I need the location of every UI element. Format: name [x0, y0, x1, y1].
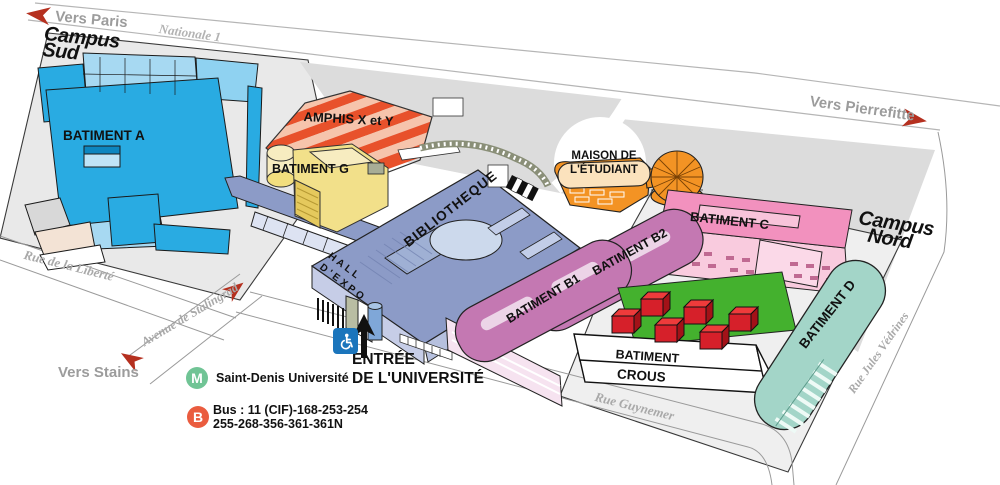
building-a [25, 53, 262, 270]
entrance-label: ENTRÉE DE L'UNIVERSITÉ [352, 350, 484, 389]
accessibility-icon [333, 328, 358, 354]
bus-icon: B [187, 406, 209, 428]
bus-lines-label-2: 255-268-356-361-361N [213, 417, 343, 431]
campus-map: { "directions": { "paris": "Vers Paris",… [0, 0, 1000, 485]
metro-icon: M [186, 367, 208, 389]
campus-sud-label: Campus Sud [42, 26, 121, 67]
batiment-a-label: BATIMENT A [63, 128, 145, 143]
entrance-column [368, 306, 382, 340]
batiment-g-label: BATIMENT G [272, 162, 349, 176]
metro-station-label: Saint-Denis Université [216, 371, 349, 385]
map-canvas [0, 0, 1000, 485]
bus-lines-label-1: Bus : 11 (CIF)-168-253-254 [213, 403, 368, 417]
vers-stains-label: Vers Stains [58, 364, 139, 381]
maison-etudiant-label: MAISON DE L'ÉTUDIANT [556, 150, 652, 178]
